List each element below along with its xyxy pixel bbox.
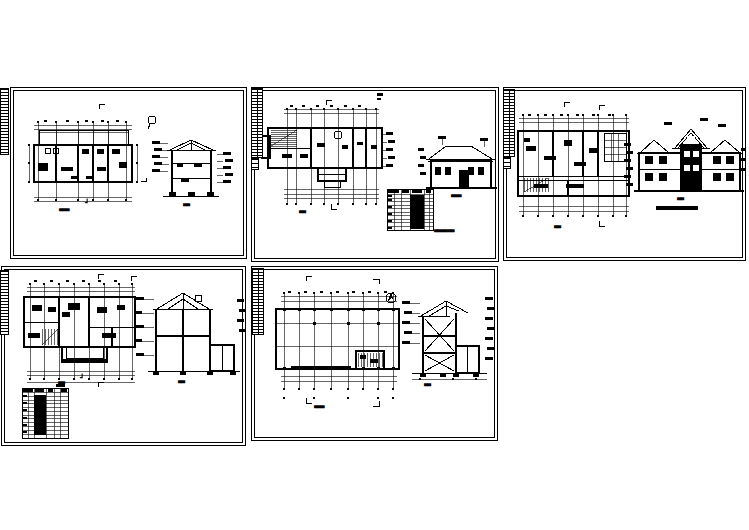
- floor-plan: [29, 104, 146, 201]
- plan-caption-mark: ┛: [85, 200, 89, 207]
- compass-icon: [386, 292, 396, 303]
- section-caption: ▄▄: [424, 381, 431, 386]
- sheet-3: ▄▄ ▄▄: [503, 87, 746, 261]
- floor-plan: [24, 274, 137, 387]
- plan-caption: ▄▄: [58, 379, 65, 384]
- sheet-2: ▄▄ ▄▄▄ ▄▄▄▄▄▄: [251, 87, 499, 262]
- sheet-1: ▄▄▄ ┛ ▄▄: [10, 87, 247, 259]
- scale-bar: [656, 206, 698, 210]
- schedule-table: [22, 384, 68, 438]
- floor-plan: [518, 102, 629, 226]
- sheet-2-revision-strip: [251, 88, 263, 158]
- plan-caption: ▄▄: [299, 208, 306, 213]
- floor-plan: [262, 93, 395, 209]
- sheet-1-revision-strip: [0, 88, 9, 155]
- sheet-3-revision-strip-tail: [503, 157, 511, 169]
- sheet-5-revision-strip: [252, 268, 264, 335]
- section-caption: ▄▄: [183, 201, 190, 206]
- building-section: [134, 293, 245, 375]
- drawing-set-canvas: ▄▄▄ ┛ ▄▄: [0, 0, 749, 530]
- sheet-2-revision-strip-tail: [251, 158, 259, 170]
- sheet-4: ▄▄ ┛ ▄▄: [1, 266, 246, 446]
- section-caption: ▄▄: [178, 378, 185, 383]
- sheet-3-revision-strip: [503, 89, 515, 157]
- north-arrow-icon: [148, 116, 156, 129]
- plan-caption: ▄▄: [554, 223, 561, 228]
- plan-caption: ▄▄▄: [59, 206, 69, 211]
- sheet-5: ▄▄▄ ▄▄: [251, 266, 498, 441]
- roof-section: [152, 140, 233, 196]
- stair-section: [402, 297, 495, 379]
- elevation-caption: ▄▄: [677, 195, 684, 200]
- schedule-table: [387, 189, 433, 230]
- two-storey-elevation: [624, 118, 746, 210]
- table-caption: ▄▄▄▄▄▄: [434, 227, 454, 232]
- plan-caption: ▄▄▄: [314, 403, 324, 408]
- sheet-4-revision-strip: [0, 270, 9, 335]
- elevation-caption: ▄▄▄: [451, 192, 461, 197]
- floor-plan: [276, 276, 399, 406]
- plan-caption-mark: ┛: [80, 375, 84, 382]
- front-elevation: [418, 136, 497, 188]
